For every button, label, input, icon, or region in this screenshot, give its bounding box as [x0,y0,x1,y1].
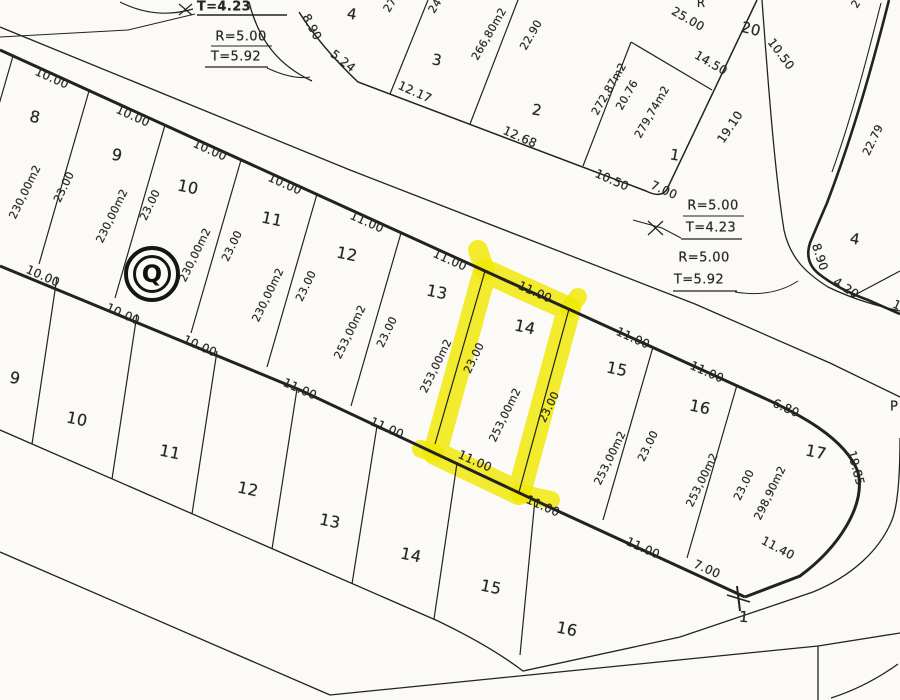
partial-label: 2 [849,0,864,11]
curve-note: T=5.92 [674,273,724,288]
lot-number: 3 [431,50,444,69]
frontage-dim: 11.00 [624,534,662,561]
curve-note: R=5.00 [678,251,729,266]
lot-area: 253,00m2 [683,451,720,509]
frontage-dim: 10.00 [191,136,229,163]
lot-number: 16 [555,618,579,641]
curve-length-dim: 19.85 [845,449,868,487]
frontage-dim: 11.00 [614,324,652,351]
depth-dim: 23.00 [219,228,245,263]
lot-area: 230,00m2 [249,266,286,324]
lot-number: 10 [176,176,200,199]
frontage-dim: 11.00 [431,246,469,273]
block-q-marker: Q [124,246,180,302]
frontage-dim: 7.00 [691,557,722,581]
curve-note: R=5.00 [215,30,266,45]
boundary-dim: 22.79 [860,122,886,157]
lot-number: 13 [318,510,342,533]
lot-number: 9 [110,145,124,166]
map-labels: 10.0010.0010.0010.0011.0011.0011.0011.00… [0,0,900,700]
lot-number: 9 [8,368,22,389]
depth-dim: 23.00 [635,428,661,463]
frontage-dim: 11.00 [688,358,726,385]
lot-area: 230,00m2 [176,226,213,284]
lot-number: 11 [260,208,284,231]
lot-number: 4 [849,229,862,248]
depth-dim: 23.00 [374,314,400,349]
boundary-dim: 14.50 [692,48,730,78]
corner-point-number: 1 [738,608,749,627]
lot-number: 2 [531,100,544,119]
frontage-dim: 11.40 [759,533,797,562]
frontage-dim: 11.00 [368,414,406,441]
curve-note: T=5.92 [211,50,261,65]
lot-area: 230,00m2 [6,163,43,221]
lot-number: 12 [236,478,260,501]
partial-label: 27 [381,0,400,15]
frontage-dim: 11.00 [281,375,319,402]
lot-number-highlighted: 14 [513,316,537,339]
partial-label: P [890,400,898,415]
boundary-dim: 19.10 [714,108,746,145]
lot-number: 20 [739,18,762,40]
frontage-dim: 10.00 [266,170,304,197]
depth-dim: 23.00 [51,169,77,204]
partial-label: 1 [891,297,900,313]
frontage-dim: 10.00 [24,262,62,289]
depth-dim: 23.00 [461,340,487,375]
lot-area: 253,00m2 [331,303,368,361]
frontage-dim: 10.00 [33,64,71,91]
lot-area: 230,00m2 [93,187,130,245]
lot-number: 16 [688,396,712,419]
frontage-dim-lot14-bottom: 11.00 [456,447,494,474]
frontage-dim: 10.00 [181,332,219,359]
frontage-dim: 12.68 [501,123,539,150]
curve-note: T=4.23 [686,221,736,236]
depth-dim: 23.00 [293,268,319,303]
lot-area: 279,74m2 [632,84,672,141]
frontage-dim: 10.00 [104,300,142,327]
depth-dim: 23.00 [137,187,163,222]
partial-label: 24 [426,0,445,16]
partial-label: R [697,0,706,10]
block-q-letter: Q [142,262,162,286]
lot-number: 14 [399,544,423,567]
frontage-dim: 6.80 [770,396,801,420]
lot-area: 253,00m2 [591,429,628,487]
lot-area-lot14: 253,00m2 [486,386,523,444]
lot-number: 15 [479,576,503,599]
lot-number: 15 [605,358,629,381]
depth-dim: 23.00 [731,467,757,502]
lot-number: 11 [158,441,182,464]
frontage-dim: 10.50 [593,166,631,193]
curve-note: R=5.00 [687,199,738,214]
frontage-dim: 11.00 [524,492,562,519]
lot-number: 8 [28,107,42,128]
curve-note: T=4.23 [197,0,251,15]
curve-dim: 5.24 [328,47,358,75]
lot-number: 1 [669,145,682,164]
boundary-dim: 10.50 [765,36,798,73]
lot-number: 17 [804,441,828,464]
lot-number: 12 [335,243,359,266]
lot-number: 10 [65,408,89,431]
depth-dim: 22.90 [517,18,545,53]
depth-dim-lot14: 23.00 [536,389,562,424]
frontage-dim: 10.00 [114,102,152,129]
frontage-dim-lot14-top: 11.00 [516,278,554,305]
cadastral-plat-map: 10.0010.0010.0010.0011.0011.0011.0011.00… [0,0,900,700]
block-q-marker-inner-circle: Q [133,255,171,293]
lot-area: 266,80m2 [469,6,509,63]
frontage-dim: 4.20 [831,275,862,302]
lot-number: 4 [346,4,359,23]
curve-dim: 8.90 [809,242,831,273]
lot-area: 253,00m2 [417,337,454,395]
frontage-dim: 7.00 [648,178,679,202]
curve-dim: 8.90 [299,11,324,42]
frontage-dim: 11.00 [348,208,386,235]
lot-number: 13 [425,281,449,304]
frontage-dim: 12.17 [396,78,434,105]
